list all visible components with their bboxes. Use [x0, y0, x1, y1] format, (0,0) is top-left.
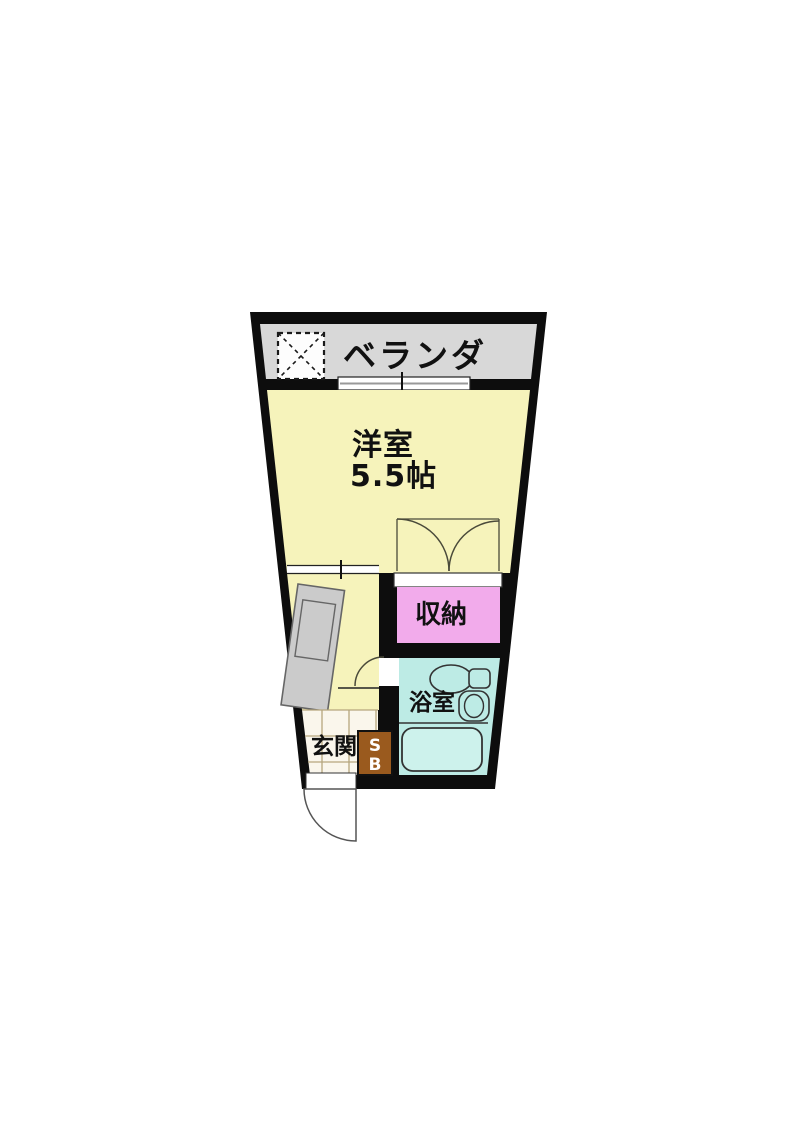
balcony-label: ベランダ — [343, 336, 487, 375]
closet-label: 収納 — [415, 599, 467, 630]
floor-plan-figure: S B ベランダ 洋室 5.5帖 収納 浴室 玄関 — [0, 0, 800, 1131]
toilet-tank-icon — [469, 669, 490, 688]
entrance-label: 玄関 — [311, 733, 357, 760]
bathroom-label: 浴室 — [409, 689, 455, 716]
main-room-label: 洋室 — [352, 428, 414, 463]
floor-plan-page: S B ベランダ 洋室 5.5帖 収納 浴室 玄関 — [0, 0, 800, 1131]
washing-machine-pad-icon — [278, 333, 324, 379]
entrance-door-arc — [304, 789, 356, 841]
main-room-size-label: 5.5帖 — [350, 459, 437, 494]
shoebox-label-s: S — [369, 736, 381, 756]
entrance-door — [304, 773, 356, 841]
entrance-door-opening — [306, 773, 356, 790]
bathtub-icon — [402, 728, 482, 771]
bathroom-door-opening — [379, 658, 399, 686]
partition-band — [287, 565, 379, 574]
closet-door-strip — [394, 573, 502, 587]
shoebox: S B — [358, 731, 392, 775]
shoebox-label-b: B — [369, 755, 382, 775]
